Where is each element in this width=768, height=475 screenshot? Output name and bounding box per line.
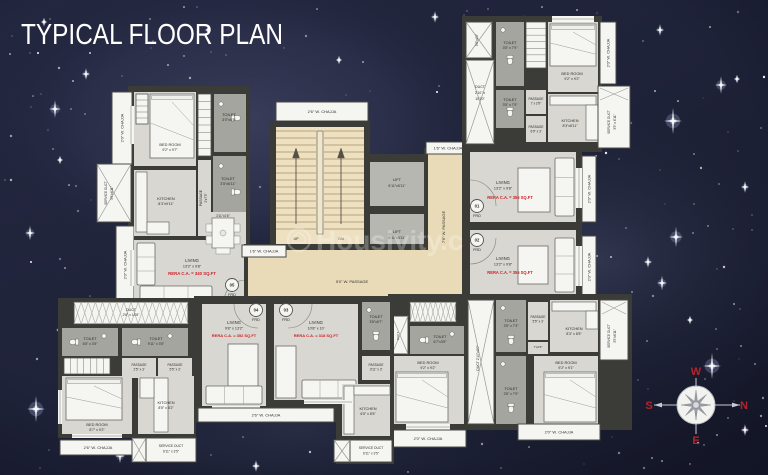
svg-text:TOILET: TOILET [149,337,163,341]
svg-text:PASSAGE: PASSAGE [369,363,384,367]
svg-text:2'0" W. CHAJJA: 2'0" W. CHAJJA [586,174,591,203]
svg-text:BED ROOM: BED ROOM [555,360,576,365]
svg-text:PASSAGE: PASSAGE [199,189,203,206]
svg-text:BED ROOM: BED ROOM [561,71,582,76]
svg-text:DUCT: DUCT [475,85,486,89]
svg-text:RERA C.A. = 318 SQ.FT: RERA C.A. = 318 SQ.FT [294,333,339,338]
svg-text:3'5" x 7'9": 3'5" x 7'9" [503,103,519,107]
svg-text:2'6" W. CHAJJA: 2'6" W. CHAJJA [252,413,281,418]
svg-text:KITCHEN: KITCHEN [157,400,174,405]
svg-text:PASSAGE: PASSAGE [531,315,546,319]
svg-text:3'5" x 7'3": 3'5" x 7'3" [504,324,520,328]
svg-text:TOILET: TOILET [221,176,235,181]
svg-text:TOILET: TOILET [504,319,518,323]
svg-text:3'5" x 7'9": 3'5" x 7'9" [503,46,519,50]
svg-text:FRD: FRD [473,214,481,218]
svg-text:S: S [645,400,652,412]
svg-text:LIVING: LIVING [227,320,241,325]
svg-text:6'11" x 3'5": 6'11" x 3'5" [363,452,380,456]
svg-text:LIVING: LIVING [185,258,199,263]
svg-text:5'5" x 3': 5'5" x 3' [532,320,543,324]
svg-text:BED ROOM: BED ROOM [417,360,438,365]
svg-text:KITCHEN: KITCHEN [157,196,175,201]
svg-text:9'2" x 9'2": 9'2" x 9'2" [564,77,580,81]
svg-text:9'2" x 9'2": 9'2" x 9'2" [420,366,436,370]
svg-text:Housivity.c: Housivity.c [316,225,463,256]
svg-text:6'5" x 8'5": 6'5" x 8'5" [360,412,376,416]
svg-text:TOILET: TOILET [503,41,517,45]
svg-text:2'0" W. CHAJJA: 2'0" W. CHAJJA [586,252,591,281]
svg-text:PASSAGE: PASSAGE [168,363,183,367]
svg-text:E: E [692,435,699,447]
svg-text:05: 05 [230,283,235,288]
svg-text:BED ROOM: BED ROOM [86,422,107,427]
svg-text:3'5"x6'7": 3'5"x6'7" [370,320,384,324]
svg-text:PASSAGE: PASSAGE [529,97,544,101]
svg-text:8'3" x 8'5": 8'3" x 8'5" [566,332,582,336]
svg-text:6'11" x 3'5": 6'11" x 3'5" [163,450,180,454]
svg-text:8'3"x9'11": 8'3"x9'11" [158,202,174,206]
svg-text:2'5" x 3': 2'5" x 3' [133,368,144,372]
svg-text:13'2" x 9'8": 13'2" x 9'8" [494,263,513,267]
svg-text:6'11"x5'11": 6'11"x5'11" [388,184,406,188]
svg-text:DUCT: DUCT [396,332,400,340]
svg-text:8'7" x 9'2": 8'7" x 9'2" [89,428,105,432]
svg-text:SERVICE DUCT: SERVICE DUCT [607,110,611,134]
svg-text:TOILET: TOILET [222,112,236,117]
svg-text:TOILET: TOILET [83,337,97,341]
svg-text:2'6" W. CHAJJA: 2'6" W. CHAJJA [84,445,113,450]
svg-text:04: 04 [254,308,259,313]
svg-text:3'5" x 7'9": 3'5" x 7'9" [504,392,520,396]
svg-text:SERVICE DUCT: SERVICE DUCT [607,324,611,348]
svg-text:6'7"x3'5": 6'7"x3'5" [434,340,448,344]
svg-text:DUCT: DUCT [126,308,137,312]
svg-text:2'0" W. CHAJJA: 2'0" W. CHAJJA [119,113,124,142]
svg-text:01: 01 [475,204,480,209]
svg-text:3'11" x 3': 3'11" x 3' [370,368,383,372]
svg-text:SERVICE DUCT: SERVICE DUCT [359,446,384,450]
svg-text:RERA C.A. = 340 SQ.FT: RERA C.A. = 340 SQ.FT [168,271,216,276]
svg-text:TOILET: TOILET [369,315,383,319]
svg-text:03: 03 [284,308,289,313]
svg-text:FRD: FRD [473,248,481,252]
svg-text:TYPICAL FLOOR PLAN: TYPICAL FLOOR PLAN [21,19,283,51]
svg-text:2'0" W. CHAJJA: 2'0" W. CHAJJA [545,430,574,435]
svg-text:DUCT 2'10"x9'0": DUCT 2'10"x9'0" [476,345,480,371]
svg-text:SERVICE DUCT: SERVICE DUCT [104,181,108,205]
svg-text:3'0"x6'5": 3'0"x6'5" [222,118,236,122]
svg-text:KITCHEN: KITCHEN [359,406,376,411]
svg-text:BED ROOM: BED ROOM [159,142,180,147]
svg-text:9'2" x 9'1": 9'2" x 9'1" [558,366,574,370]
svg-text:10'8" x 10': 10'8" x 10' [308,327,325,331]
svg-text:TOILET: TOILET [433,335,447,339]
svg-text:2'0" W. CHAJJA: 2'0" W. CHAJJA [605,38,610,67]
svg-text:LIFT: LIFT [393,177,402,182]
svg-text:W: W [691,366,702,378]
svg-text:RERA C.A. = 355 SQ.FT: RERA C.A. = 355 SQ.FT [487,270,533,275]
svg-text:3'5"x6'11": 3'5"x6'11" [110,186,114,200]
svg-text:LIVING: LIVING [496,180,510,185]
svg-text:PASSAGE: PASSAGE [529,125,544,129]
svg-text:3'5" x 6'11": 3'5" x 6'11" [613,114,617,129]
svg-text:5'0" W. PASSAGE: 5'0" W. PASSAGE [336,279,369,284]
svg-text:1'6" W. CHAJJA: 1'6" W. CHAJJA [434,146,463,151]
svg-text:13'2" x 9'8": 13'2" x 9'8" [183,265,202,269]
svg-text:FRD: FRD [282,318,290,322]
svg-text:TOILET: TOILET [504,387,518,391]
svg-text:1'6" W. CHAJJA: 1'6" W. CHAJJA [250,249,279,254]
svg-text:9'8" x 13'2": 9'8" x 13'2" [225,327,244,331]
svg-text:FRD: FRD [252,318,260,322]
svg-text:8'5" x 8'2": 8'5" x 8'2" [158,406,174,410]
svg-text:3'5"x6'11": 3'5"x6'11" [613,329,617,343]
svg-text:LIVING: LIVING [496,256,510,261]
svg-text:2'x7'5": 2'x7'5" [204,193,208,202]
svg-text:6'5" x 3'5": 6'5" x 3'5" [83,342,99,346]
svg-text:13'2" x 9'8": 13'2" x 9'8" [494,187,513,191]
svg-text:8'3"x8'11": 8'3"x8'11" [562,124,578,128]
svg-text:9'2" x 9'7": 9'2" x 9'7" [162,148,178,152]
svg-text:3'11"x1'6": 3'11"x1'6" [216,214,230,218]
svg-text:UP: UP [294,237,300,241]
svg-text:KITCHEN: KITCHEN [565,326,582,331]
svg-text:TOILET: TOILET [503,98,517,102]
svg-text:6'9" x 3': 6'9" x 3' [530,130,541,134]
svg-text:2'0" W. CHAJJA: 2'0" W. CHAJJA [414,436,443,441]
svg-text:7'x2'6": 7'x2'6" [534,345,543,349]
svg-text:02: 02 [475,238,480,243]
svg-text:RERA C.A. = 352 SQ.FT: RERA C.A. = 352 SQ.FT [212,333,257,338]
svg-text:3'5"x6'11": 3'5"x6'11" [220,182,236,186]
svg-text:KITCHEN: KITCHEN [561,118,578,123]
svg-text:9'11" x 3'5": 9'11" x 3'5" [148,342,165,346]
svg-text:2'0" W. CHAJJA: 2'0" W. CHAJJA [122,250,127,279]
svg-text:N: N [740,400,748,412]
svg-text:7 x 2'9": 7 x 2'9" [531,102,541,106]
svg-text:PASSAGE: PASSAGE [132,363,147,367]
svg-text:SERVICE DUCT: SERVICE DUCT [159,444,184,448]
svg-text:2'6" x 14'6": 2'6" x 14'6" [123,313,141,317]
svg-text:5'0"x4'0": 5'0"x4'0" [475,34,479,46]
svg-text:2'6" W. CHAJJA: 2'6" W. CHAJJA [308,109,337,114]
svg-text:10'10": 10'10" [475,97,485,101]
svg-text:5'5" x 3': 5'5" x 3' [169,368,180,372]
svg-text:2'10" x: 2'10" x [475,91,485,95]
svg-text:LIVING: LIVING [309,320,323,325]
